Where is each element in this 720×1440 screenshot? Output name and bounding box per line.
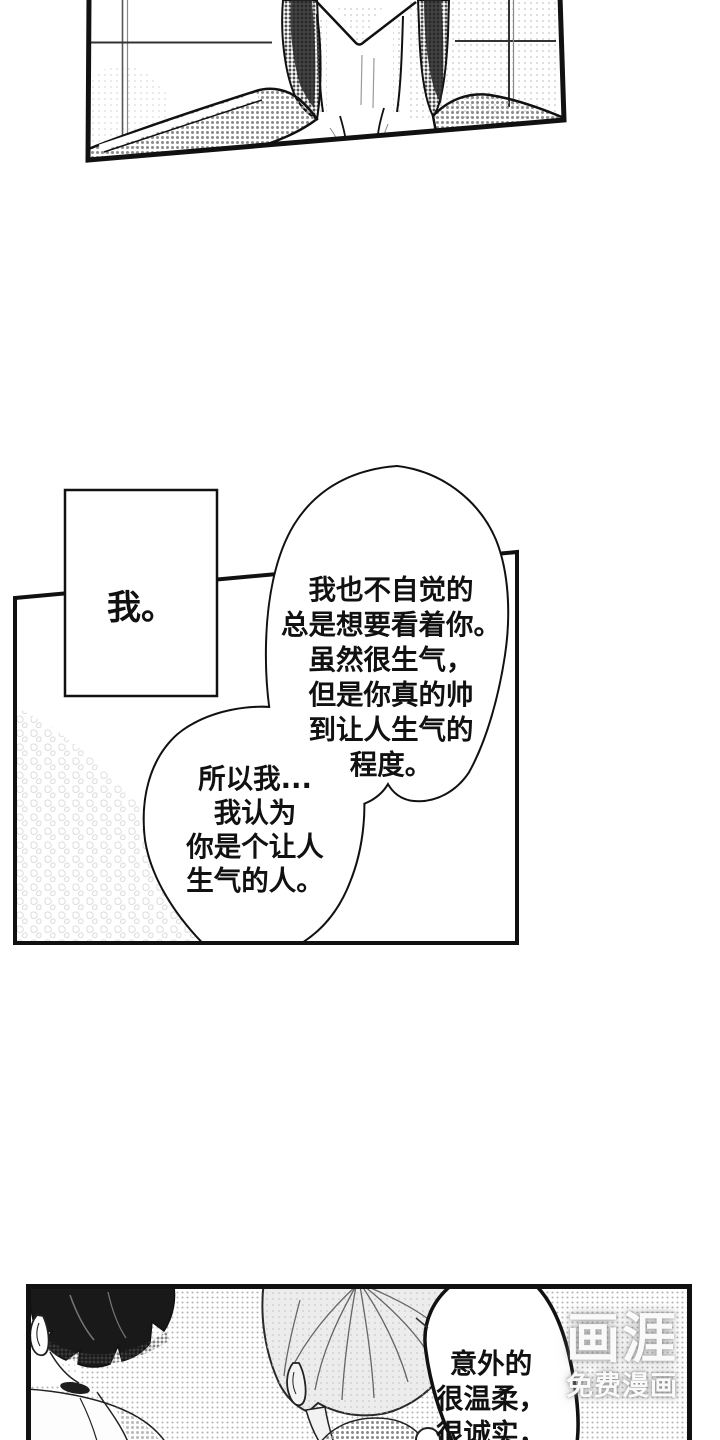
ear	[30, 1315, 48, 1355]
top-panel	[74, 0, 564, 160]
bubble-line: 到让人生气的	[268, 713, 514, 748]
bubble-line: 虽然很生气，	[268, 643, 514, 678]
watermark: 画涯 免费漫画	[552, 1310, 692, 1402]
bubble-line: 总是想要看着你。	[268, 608, 514, 643]
bubble-line: 很诚实，	[404, 1417, 578, 1440]
bubble-line: 生气的人。	[148, 864, 362, 898]
speech-bubble-main-text: 我也不自觉的 总是想要看着你。 虽然很生气， 但是你真的帅 到让人生气的 程度。	[268, 573, 514, 783]
manga-page: 我。 我也不自觉的 总是想要看着你。 虽然很生气， 但是你真的帅 到让人生气的 …	[0, 0, 720, 1440]
speech-bubble-sub-text: 所以我... 我认为 你是个让人 生气的人。	[148, 762, 362, 898]
caption-text: 我。	[65, 588, 217, 628]
sweat-drop	[22, 1336, 26, 1346]
watermark-brand: 画涯	[552, 1310, 692, 1368]
bubble-line: 但是你真的帅	[268, 678, 514, 713]
watermark-tagline: 免费漫画	[552, 1372, 692, 1402]
bubble-line: 我认为	[148, 796, 362, 830]
bubble-line: 你是个让人	[148, 830, 362, 864]
bubble-line: 所以我...	[148, 762, 362, 796]
bubble-line: 我也不自觉的	[268, 573, 514, 608]
